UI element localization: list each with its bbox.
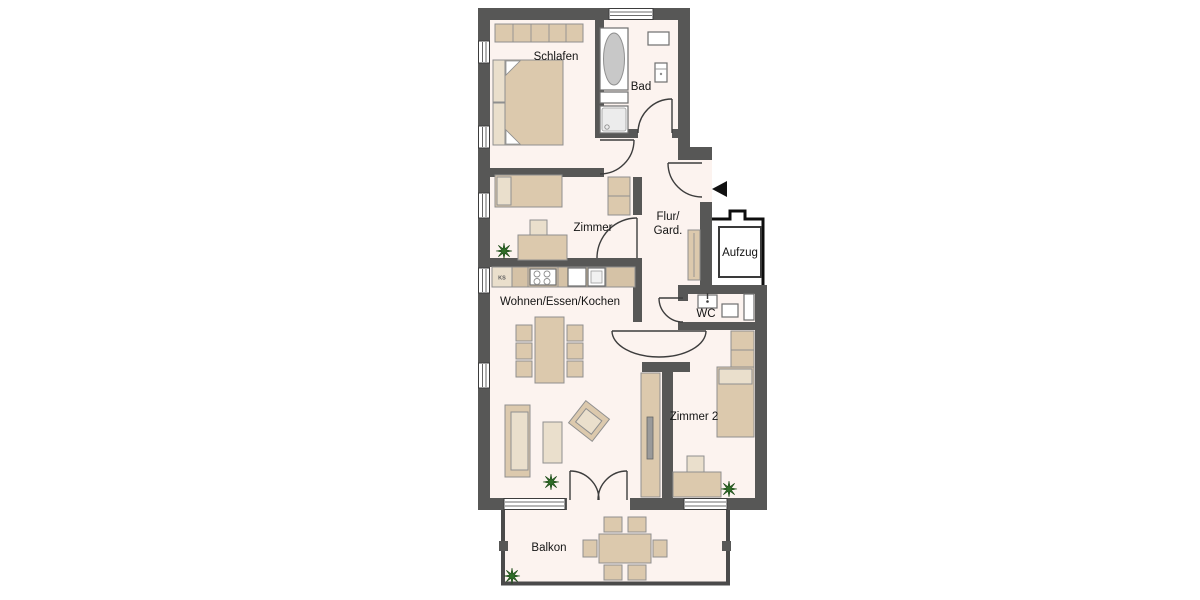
window-icon (479, 41, 490, 63)
wall-wc-left-bottom (678, 322, 688, 330)
wc-sink-icon (698, 293, 717, 308)
wall-zimmer-right (633, 177, 642, 215)
bed (495, 175, 562, 207)
dining-table (516, 317, 583, 383)
plant-icon (721, 481, 737, 497)
window-icon (609, 9, 653, 20)
window-icon (479, 193, 490, 218)
wall-right-lower (755, 285, 767, 510)
wall-bad-bottom-r (672, 129, 690, 138)
plant-icon (543, 474, 559, 490)
label-balkon: Balkon (531, 542, 566, 554)
wc-duct (744, 294, 754, 320)
plant-icon (504, 568, 520, 584)
window-icon (479, 268, 490, 293)
label-wc: WC (696, 308, 715, 320)
wall-wc-bottom (688, 322, 755, 330)
label-aufzug: Aufzug (722, 247, 758, 259)
fridge-label: KS (498, 276, 506, 282)
shower-icon (600, 106, 628, 133)
sink-icon (648, 32, 669, 45)
tv-cabinet (641, 373, 660, 497)
coffee-table (543, 422, 562, 463)
entrance-arrow-icon (712, 181, 727, 197)
wall-entry-top (678, 147, 712, 160)
window-icon (684, 499, 727, 510)
label-flur-line2: Gard. (654, 225, 683, 237)
wall-hall-right (700, 202, 712, 287)
bathtub-icon (600, 28, 628, 90)
wardrobe (731, 331, 754, 369)
label-zimmer2: Zimmer 2 (670, 411, 719, 423)
label-zimmer: Zimmer (574, 222, 613, 234)
double-bed (493, 60, 563, 145)
toilet-icon (655, 63, 667, 82)
label-schlafen: Schlafen (534, 51, 579, 63)
window-icon (479, 126, 490, 148)
floor-plan: KS (0, 0, 1200, 600)
window-icon (479, 363, 490, 388)
stove-icon (530, 269, 556, 285)
wall-top (478, 8, 690, 20)
label-wohnen: Wohnen/Essen/Kochen (500, 296, 620, 308)
sofa (505, 405, 530, 477)
label-bad: Bad (631, 81, 651, 93)
wall-wc-top (678, 285, 767, 294)
gard-wardrobe (688, 230, 700, 280)
bath-shelf (600, 92, 628, 103)
tv-icon (647, 417, 653, 459)
kitchen-counter: KS (492, 267, 635, 287)
floor-plan-canvas: KS (0, 0, 1200, 600)
wc-toilet-icon (722, 304, 738, 317)
kitchen-sink-icon (568, 268, 605, 286)
label-flur-line1: Flur/ (657, 211, 681, 223)
window-icon (504, 499, 565, 510)
wall-zimmer2-left (662, 362, 673, 498)
balcony-table (599, 534, 651, 563)
bed (717, 367, 754, 437)
wardrobe (608, 177, 630, 215)
plant-icon (496, 243, 512, 259)
wardrobe (495, 24, 583, 42)
